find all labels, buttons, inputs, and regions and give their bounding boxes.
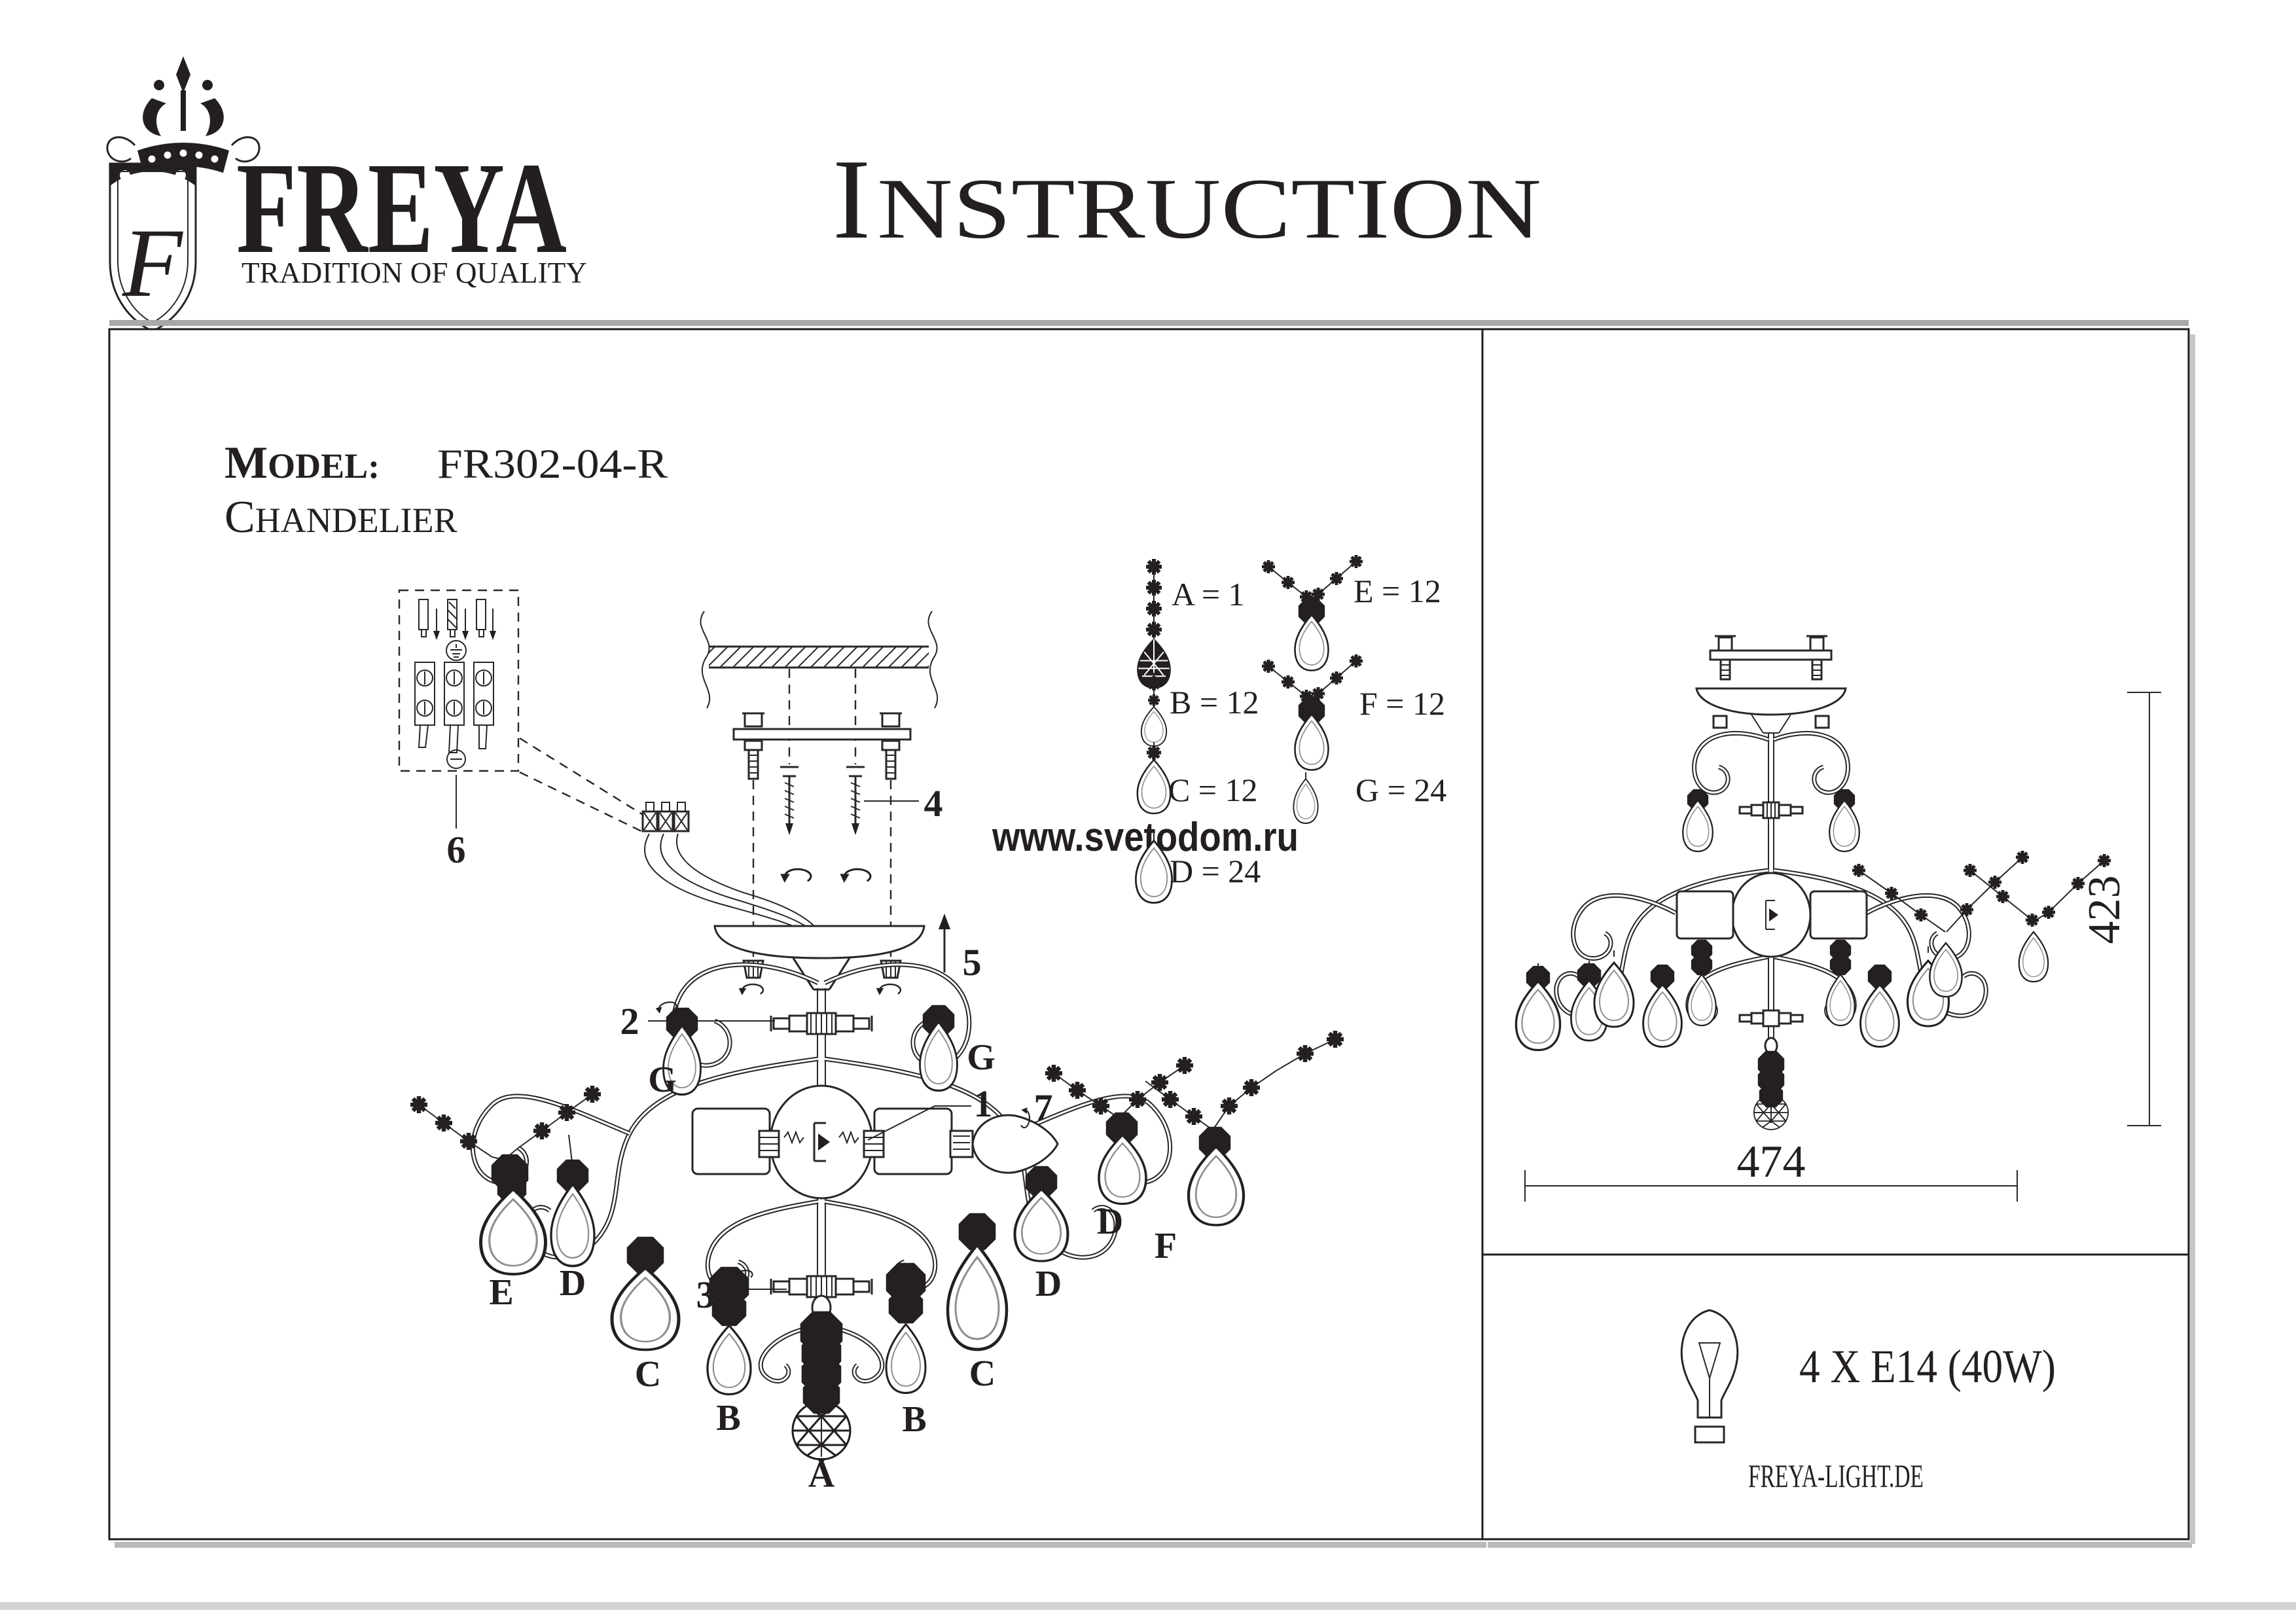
shield-icon: F (110, 164, 196, 331)
page-title: I NSTRUCTION (833, 135, 1541, 262)
bulb-spec: 4 X E14 (40W) (1799, 1340, 2056, 1393)
legend-e: E = 12 (1354, 573, 1441, 609)
panel-shadow-bottom-right (1488, 1542, 2192, 1548)
callout-5: 5 (963, 941, 982, 984)
title-rest: NSTRUCTION (877, 160, 1541, 257)
label-c-left: C (635, 1354, 661, 1395)
model-label-initial: M (224, 438, 268, 488)
model-label-rest: ODEL: (268, 446, 380, 486)
label-c-right: C (969, 1353, 996, 1394)
label-d-far: D (1097, 1202, 1123, 1242)
panel-shadow-right (2190, 334, 2195, 1544)
model-type-initial: C (224, 492, 255, 543)
callout-7: 7 (1034, 1086, 1053, 1129)
website: FREYA-LIGHT.DE (1748, 1457, 1924, 1494)
brand-tagline: TRADITION OF QUALITY (242, 257, 587, 289)
instruction-sheet: F FREYA TRADITION OF QUALITY I NSTRUCTIO… (0, 0, 2296, 1623)
page-edge-shadow (0, 1602, 2296, 1610)
label-g-left: G (648, 1060, 677, 1100)
label-e: E (489, 1272, 513, 1313)
scan-shadow-top (109, 320, 2189, 326)
legend-g: G = 24 (1355, 772, 1446, 808)
model-type-rest: HANDELIER (255, 501, 457, 540)
label-g-right: G (967, 1037, 996, 1078)
label-a: A (808, 1455, 835, 1495)
model-value: FR302-04-R (437, 440, 668, 487)
label-d-right: D (1035, 1264, 1062, 1304)
callout-6: 6 (447, 829, 466, 871)
label-b-left: B (716, 1398, 740, 1438)
panel-shadow-bottom-left (115, 1542, 1486, 1548)
legend-d: D = 24 (1170, 853, 1261, 889)
dimension-height-value: 423 (2079, 876, 2130, 944)
freya-logo: F FREYA TRADITION OF QUALITY (107, 56, 587, 331)
callout-2: 2 (620, 1000, 639, 1043)
logo-monogram: F (122, 209, 183, 317)
callout-3: 3 (696, 1274, 715, 1316)
body-sphere (770, 1086, 872, 1198)
label-f: F (1155, 1226, 1177, 1266)
legend-c: C = 12 (1168, 772, 1258, 808)
legend-b: B = 12 (1170, 684, 1259, 721)
legend-a: A = 1 (1172, 576, 1245, 613)
callout-1: 1 (974, 1082, 993, 1125)
title-initial: I (833, 135, 870, 262)
callout-4: 4 (924, 782, 943, 825)
label-d-left: D (560, 1263, 586, 1304)
dimension-width-value: 474 (1737, 1137, 1806, 1187)
legend-f: F = 12 (1359, 685, 1445, 722)
label-b-right: B (902, 1399, 926, 1440)
